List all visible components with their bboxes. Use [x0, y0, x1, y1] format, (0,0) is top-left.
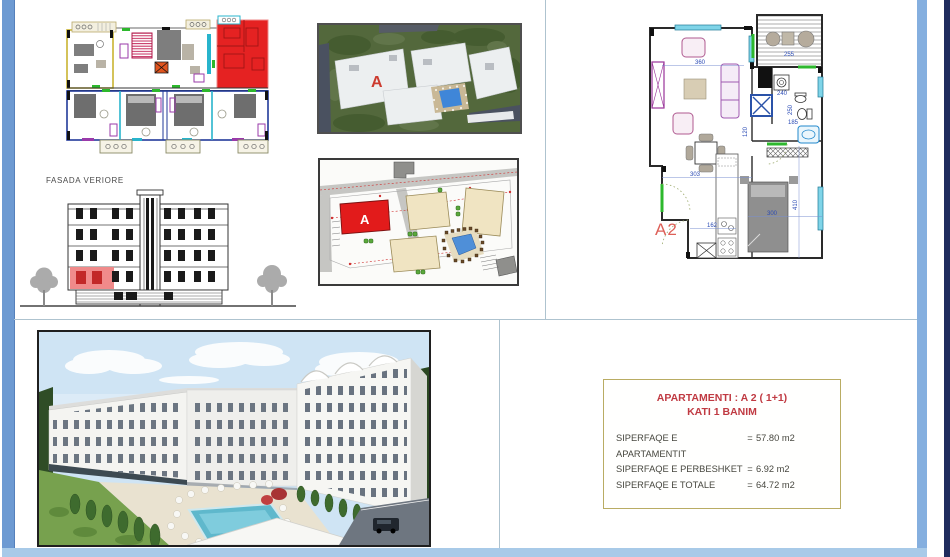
presentation-page: { "elevation": { "label": "FASADA VERIOR…	[0, 0, 950, 557]
info-row-value: 64.72 m2	[756, 478, 795, 494]
info-title-line1: APARTAMENTI : A 2 ( 1+1)	[604, 391, 840, 405]
divider-vertical-bottom	[499, 319, 500, 548]
svg-text:360: 360	[695, 60, 706, 66]
apartment-info-box: APARTAMENTI : A 2 ( 1+1) KATI 1 BANIM SI…	[603, 379, 841, 509]
svg-text:162: 162	[707, 223, 718, 229]
aerial-building-label: A	[371, 74, 383, 91]
page-border-bottom	[2, 548, 927, 557]
highlighted-block: A	[340, 200, 390, 234]
shaft	[758, 67, 772, 88]
shower-icon	[798, 126, 819, 143]
stair-tower	[137, 190, 163, 306]
road	[319, 43, 331, 132]
info-row-label: SIPERFAQE E PERBESHKET	[616, 462, 744, 478]
wardrobe-icon	[652, 62, 664, 108]
elevator-icon	[155, 62, 168, 73]
building-render	[37, 330, 431, 547]
svg-text:303: 303	[690, 172, 701, 178]
info-row-common-area: SIPERFAQE E PERBESHKET = 6.92 m2	[616, 462, 830, 478]
sofa-icon	[721, 64, 739, 118]
toilet-icon	[798, 109, 813, 120]
svg-text:410: 410	[793, 199, 799, 210]
stairs-icon	[132, 33, 152, 58]
balcony-top-left	[72, 22, 116, 32]
divider-vertical-top	[545, 0, 546, 319]
apartment-label: A2	[655, 220, 678, 239]
info-row-total-area: SIPERFAQE E TOTALE = 64.72 m2	[616, 478, 830, 494]
balcony-terrace	[757, 15, 822, 67]
site-plan-drawing: A	[320, 160, 517, 284]
info-row-label: SIPERFAQE E APARTAMENTIT	[616, 431, 744, 462]
washer-icon	[774, 75, 789, 90]
unit-outline-yellow	[67, 30, 113, 88]
aerial-drawing: A	[319, 25, 520, 132]
shaft-x-icon	[751, 95, 772, 116]
balcony-top-center	[186, 20, 210, 29]
unit-highlight-red	[217, 16, 268, 88]
balconies-bottom	[100, 140, 268, 153]
page-border-left	[2, 0, 15, 557]
siteplan-building-label: A	[360, 212, 370, 227]
wardrobe-icon	[767, 148, 808, 157]
info-row-apartment-area: SIPERFAQE E APARTAMENTIT = 57.80 m2	[616, 431, 830, 462]
typical-floor-plan	[62, 14, 270, 160]
sink-icon	[795, 93, 806, 103]
page-border-right	[917, 0, 927, 557]
site-plan: A	[318, 158, 519, 286]
coffee-table-icon	[684, 79, 706, 99]
svg-text:240: 240	[777, 91, 788, 97]
svg-text:185: 185	[788, 120, 799, 126]
info-row-value: 57.80 m2	[756, 431, 795, 462]
aerial-site-photo: A	[317, 23, 522, 134]
equals-sign: =	[744, 478, 756, 494]
tree-icon	[30, 268, 58, 307]
elevation-drawing	[18, 188, 300, 312]
apartment-a2-drawing: 360 255 240 120 250 185 303 162 300 410 …	[648, 6, 824, 262]
equals-sign: =	[744, 431, 756, 462]
pool	[431, 83, 469, 113]
render-drawing	[39, 332, 429, 545]
equals-sign: =	[744, 462, 756, 478]
svg-text:250: 250	[788, 104, 794, 115]
info-title-line2: KATI 1 BANIM	[604, 405, 840, 419]
info-row-label: SIPERFAQE E TOTALE	[616, 478, 744, 494]
divider-horizontal	[14, 319, 917, 320]
tree-icon	[257, 265, 287, 306]
typical-floor-plan-drawing	[62, 14, 270, 160]
svg-text:120: 120	[743, 126, 749, 137]
north-facade-elevation	[18, 188, 300, 312]
elevation-title: FASADA VERIORE	[46, 176, 124, 185]
info-row-value: 6.92 m2	[756, 462, 790, 478]
svg-text:255: 255	[784, 52, 795, 58]
svg-text:300: 300	[767, 211, 778, 217]
apartment-a2-plan: 360 255 240 120 250 185 303 162 300 410 …	[648, 6, 824, 262]
page-border-edge	[944, 0, 950, 557]
